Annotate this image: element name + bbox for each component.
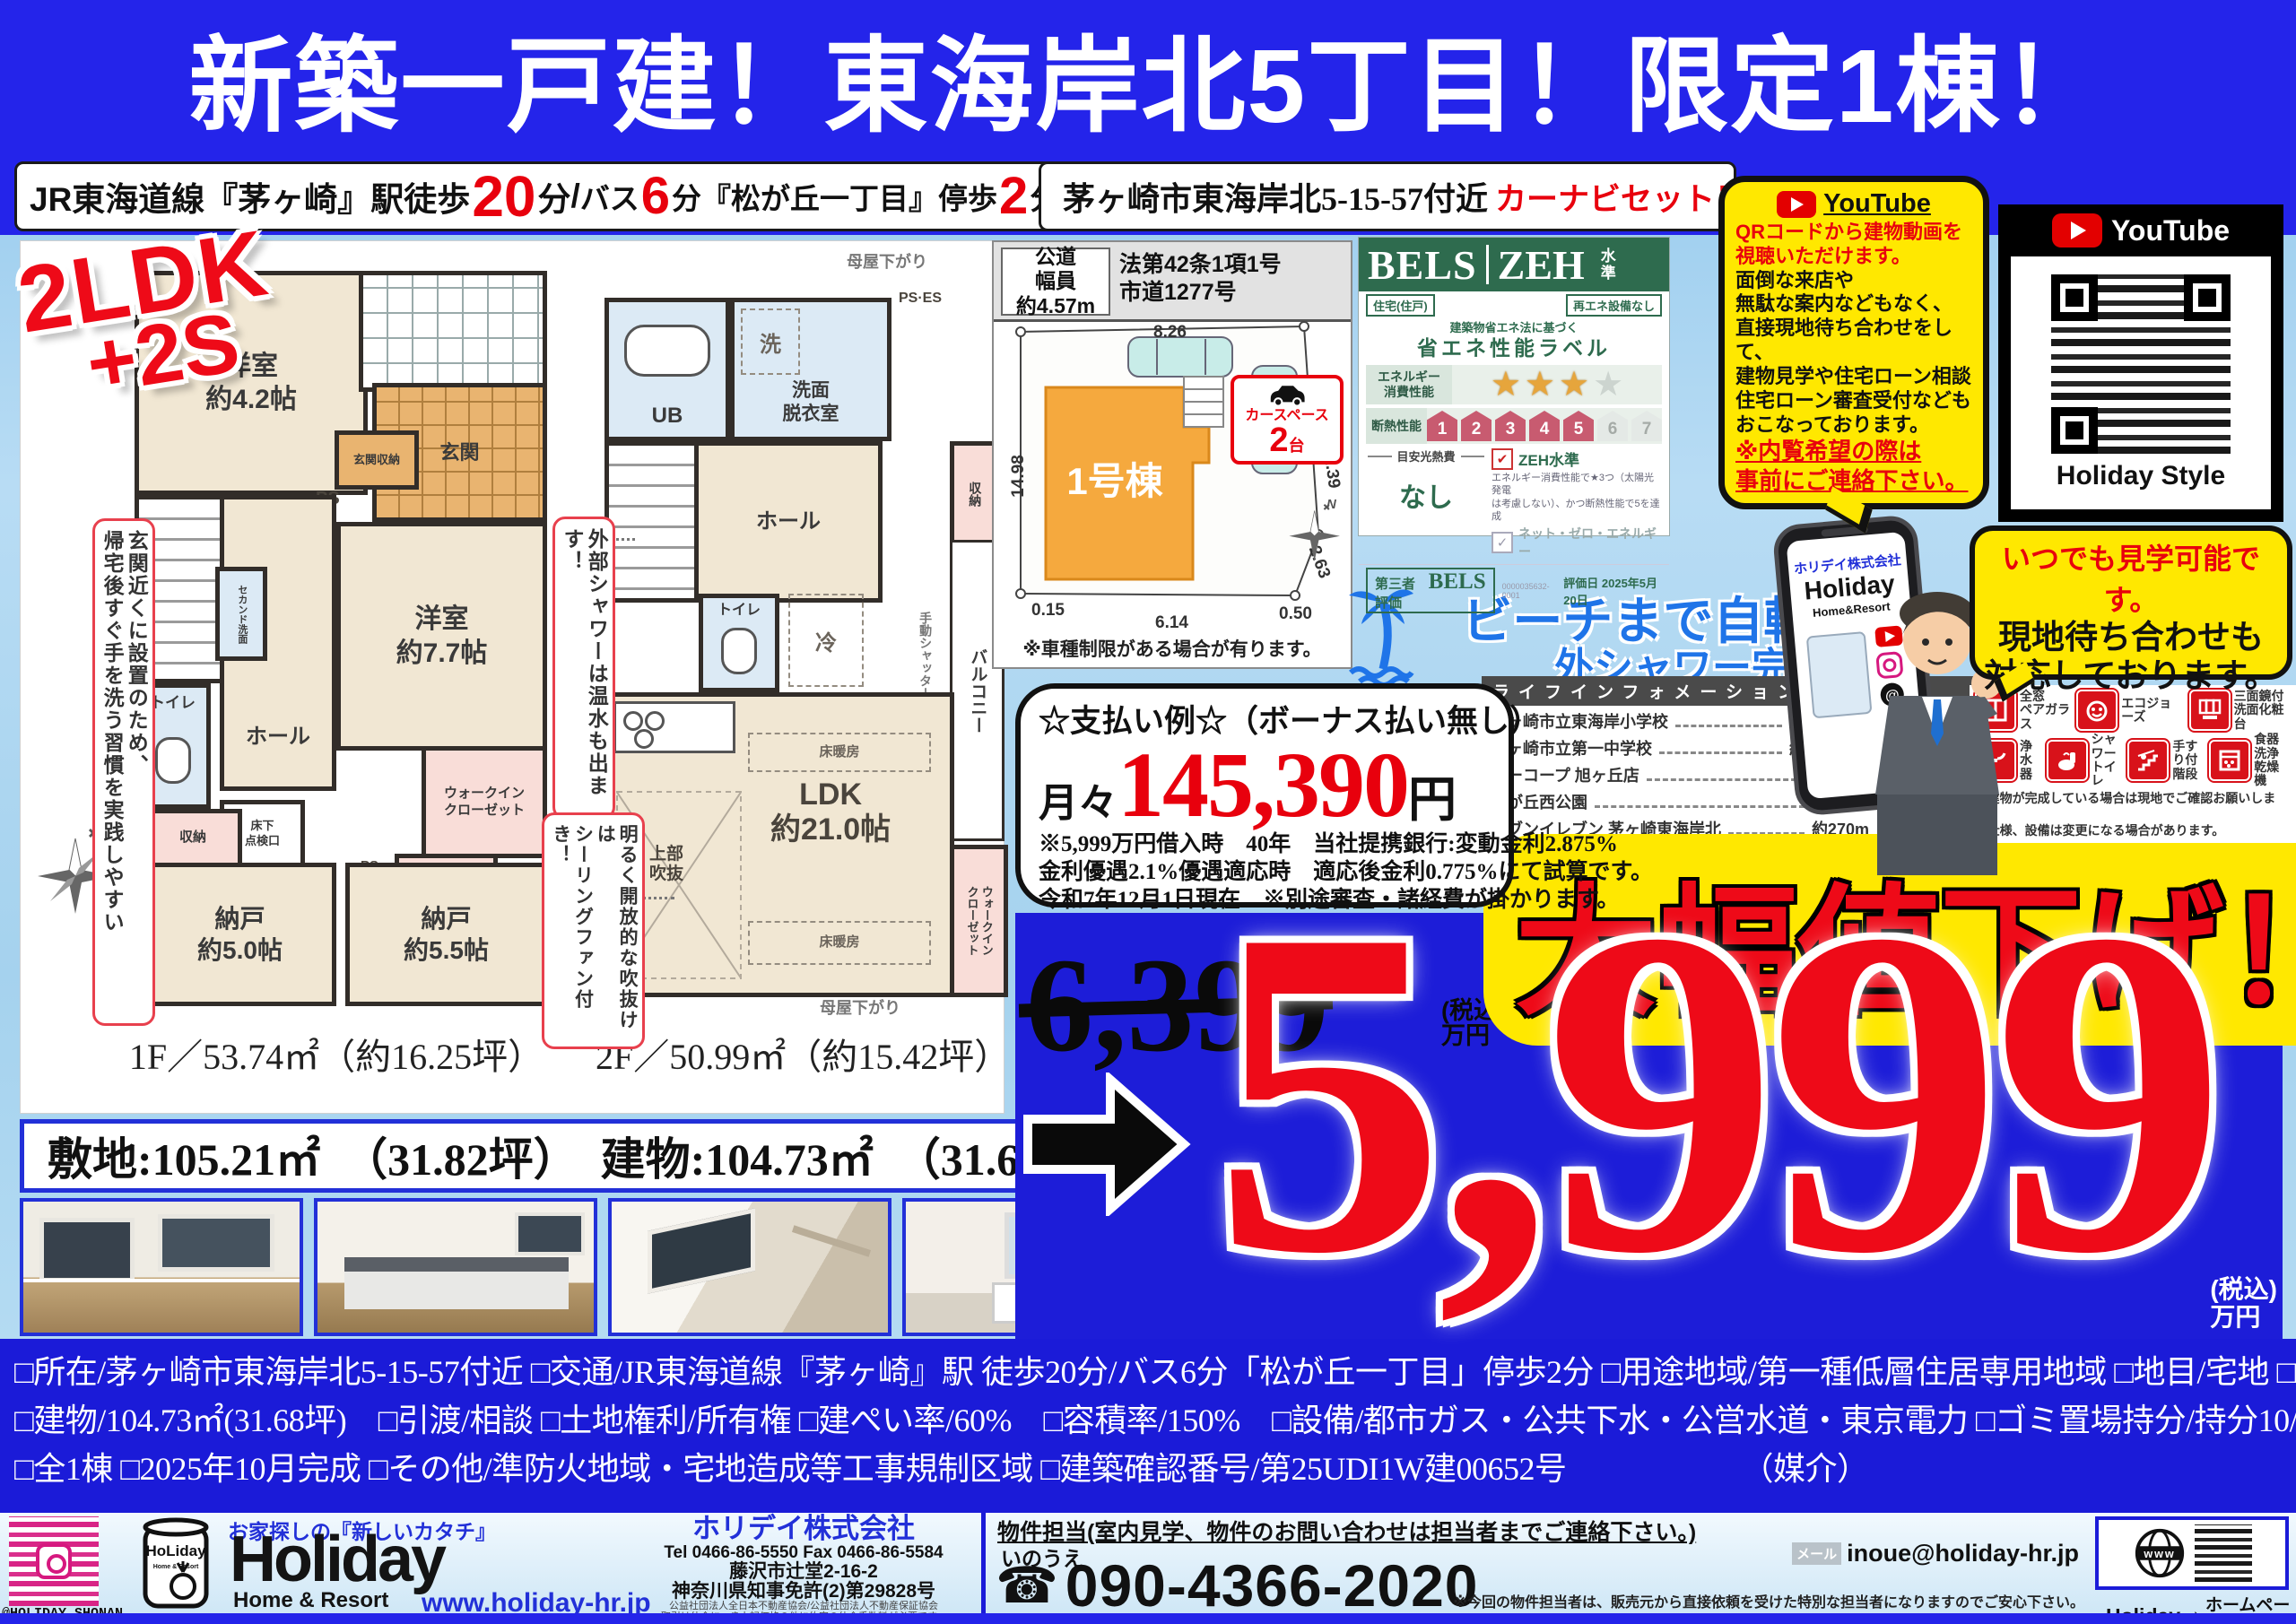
zeh-sub: 水準 bbox=[1596, 248, 1618, 282]
insulation-scale: 1 2 3 4 5 6 7 bbox=[1427, 408, 1662, 444]
youtube-brand: YouTube bbox=[2111, 214, 2230, 248]
carnavi-label: カーナビセット！ bbox=[1495, 174, 1736, 220]
bels-header: BELS ZEH 水準 bbox=[1359, 238, 1669, 291]
feature-item: シャワー トイレ bbox=[2047, 733, 2123, 788]
dim-bottom: 6.14 bbox=[1155, 613, 1188, 633]
room-ldk: 上部 吹抜 LDK 約21.0帖 床暖房 床暖房 bbox=[604, 692, 954, 997]
floor-heating-1: 床暖房 bbox=[748, 733, 931, 772]
company-info: ホリデイ株式会社 Tel 0466-86-5550 Fax 0466-86-55… bbox=[631, 1515, 976, 1623]
siteplan-note: ※車種制限がある場合が有ります。 bbox=[994, 635, 1351, 662]
building-number-label: 1号棟 bbox=[1066, 460, 1163, 502]
zeh-brand: ZEH bbox=[1498, 241, 1585, 289]
youtube-line: 直接現地待ち合わせをして、 bbox=[1735, 317, 1972, 365]
payment-example-box: ☆支払い例☆（ボーナス払い無し） 月々 145,390 円 ※5,999万円借入… bbox=[1015, 683, 1514, 908]
photo-window bbox=[158, 1214, 274, 1272]
room-genkan-storage: 玄関収納 bbox=[335, 430, 419, 490]
room-western-7_7: 洋室 約7.7帖 bbox=[336, 522, 547, 751]
insulation-grade: 4 bbox=[1529, 411, 1560, 441]
holiday-logo: Holiday bbox=[230, 1529, 444, 1590]
checkbox-gray-icon: ✓ bbox=[1492, 532, 1513, 553]
star-icon: ★ bbox=[1491, 368, 1521, 402]
bels-label-title: 省エネ性能ラベル bbox=[1359, 335, 1669, 361]
eco-jozu-icon bbox=[2076, 690, 2118, 731]
divider bbox=[981, 1513, 986, 1613]
dim-top: 8.26 bbox=[1153, 323, 1187, 343]
carspace-badge: カースペース 2台 bbox=[1231, 375, 1344, 465]
photo-living bbox=[20, 1198, 303, 1336]
room-storage: 収納 bbox=[143, 809, 242, 867]
youtube-qr-box: YouTube Holiday Style bbox=[1998, 204, 2283, 522]
label-shutter: 手動シャッター bbox=[918, 612, 933, 699]
room-storage-5_5: 納戸 約5.5帖 bbox=[345, 863, 547, 1006]
details-line-1: □所在/茅ヶ崎市東海岸北5-15-57付近 □交通/JR東海道線『茅ヶ崎』駅 徒… bbox=[14, 1348, 2282, 1396]
youtube-brand: YouTube bbox=[1823, 189, 1931, 219]
globe-www-icon: www bbox=[2132, 1525, 2187, 1581]
toilet-icon bbox=[721, 628, 757, 674]
company-license: 神奈川県知事免許(2)第29828号 bbox=[631, 1582, 976, 1602]
note-outdoor-shower: 外部シャワーは温水も出ます！ bbox=[552, 517, 615, 820]
visit-line-2: 現地待ち合わせも bbox=[1982, 619, 2280, 657]
youtube-line: 無駄な案内などもなく、 bbox=[1735, 292, 1972, 317]
handrail-stairs-icon bbox=[2127, 740, 2169, 781]
agent-phone-illustration: ホリデイ株式会社 Holiday Home&Resort @ bbox=[1771, 499, 2000, 920]
homepage-qr-code bbox=[2195, 1524, 2252, 1582]
bus-minutes: 6 bbox=[641, 170, 670, 222]
photo-window bbox=[39, 1218, 135, 1282]
photo-kitchen bbox=[314, 1198, 597, 1336]
car-icon bbox=[1266, 382, 1308, 407]
stairs-down bbox=[604, 441, 703, 603]
washer-space: 洗 bbox=[741, 308, 800, 375]
compass-icon: N bbox=[1288, 499, 1342, 565]
bus-stop-name: 分『松が丘一丁目』停歩 bbox=[672, 175, 997, 218]
contact-block: 物件担当(室内見学、物件のお問い合わせは担当者までご連絡下さい。) いのうえ メ… bbox=[996, 1513, 2088, 1613]
homepage-box: www bbox=[2095, 1516, 2289, 1590]
qr-caption: Holiday Style bbox=[2057, 461, 2225, 491]
fridge-space: 冷 bbox=[788, 594, 864, 687]
feature-label: 手すり付 階段 bbox=[2172, 740, 2204, 781]
energy-row-label: エネルギー 消費性能 bbox=[1366, 365, 1452, 404]
features-note-2: ※仕様、設備は変更になる場合があります。 bbox=[1975, 822, 2291, 838]
insulation-grade: 1 bbox=[1427, 411, 1457, 441]
carspace-unit: 台 bbox=[1289, 438, 1305, 454]
new-price-tax: (税込) 万円 bbox=[2210, 1276, 2277, 1332]
road-law-label: 法第42条1項1号 市道1277号 bbox=[1119, 251, 1282, 308]
youtube-play-icon bbox=[2052, 213, 2102, 248]
evaluation-date: 評価日 2025年5月20日 bbox=[1563, 574, 1662, 608]
room-second-washbasin: セカンド洗面 bbox=[215, 567, 267, 661]
cert-id: 0000035632-0001 bbox=[1502, 582, 1557, 600]
instagram-qr-code bbox=[9, 1516, 99, 1606]
bus-label: バス bbox=[580, 175, 639, 218]
toilet-icon bbox=[155, 737, 191, 784]
company-telfax: Tel 0466-86-5550 Fax 0466-86-5584 bbox=[631, 1544, 976, 1562]
photo-beam bbox=[792, 1225, 871, 1256]
payment-note-2: 金利優遇2.1%優遇適応時 適応後金利0.775%にて試算です。 bbox=[1039, 858, 1491, 886]
insulation-row: 断熱性能 1 2 3 4 5 6 7 bbox=[1366, 408, 1662, 444]
details-line-3: □全1棟 □2025年10月完成 □その他/準防火地域・宅地造成等工事規制区域 … bbox=[14, 1445, 2282, 1493]
bels-zeh-label: BELS ZEH 水準 住宅(住戸) 再エネ設備なし 建築物省エネ法に基づく 省… bbox=[1358, 237, 1670, 536]
bels-law-text: 建築物省エネ法に基づく bbox=[1359, 321, 1669, 335]
feature-label: 三面鏡付 洗面化粧台 bbox=[2234, 690, 2285, 731]
contact-note: ※今回の物件担当者は、販売元から直接依頼を受けた特別な担当者になりますのでご安心… bbox=[1453, 1590, 2084, 1611]
bels-tag-housing: 住宅(住戸) bbox=[1366, 294, 1435, 317]
room-wic-2f: ウォークイン クローゼット bbox=[950, 845, 1008, 997]
visit-bubble: いつでも見学可能です。 現地待ち合わせも 対応しております。 bbox=[1970, 525, 2292, 680]
shower-toilet-icon bbox=[2047, 740, 2088, 781]
walk-minutes: 20 bbox=[472, 168, 535, 225]
zeh-block: ✔ZEH水準 エネルギー消費性能で★3つ（太陽光発電 は考慮しない）、かつ断熱性… bbox=[1492, 447, 1660, 560]
stop-minutes: 2 bbox=[999, 170, 1028, 222]
company-address: 藤沢市辻堂2-16-2 bbox=[631, 1562, 976, 1582]
siteplan-drawing: 1号棟 bbox=[994, 319, 1351, 615]
feature-label: シャワー トイレ bbox=[2092, 733, 2123, 788]
label-void: 上部 吹抜 bbox=[649, 845, 683, 884]
contact-mail-row: メール inoue@holiday-hr.jp bbox=[1792, 1540, 2079, 1568]
energy-row: エネルギー 消費性能 ★ ★ ★ ★ bbox=[1366, 365, 1662, 404]
features-panel: 全窓 ペアガラス エコジョーズ 三面鏡付 洗面化粧台 浄水器 シャワー トイレ bbox=[1970, 685, 2296, 843]
photo-detail bbox=[23, 1279, 303, 1282]
checkbox-checked-icon: ✔ bbox=[1492, 448, 1513, 470]
visit-line-3: 対応しております。 bbox=[1982, 657, 2280, 696]
utility-cost-block: 目安光熱費 なし bbox=[1368, 447, 1484, 560]
flyer-page: 新築一戸建！東海岸北5丁目！限定1棟！ JR東海道線『茅ヶ崎』駅徒歩20分/バス… bbox=[0, 0, 2296, 1624]
instagram-icon bbox=[36, 1543, 72, 1579]
monthly-amount: 145,390 bbox=[1118, 742, 1408, 830]
bels-bottom: 目安光熱費 なし ✔ZEH水準 エネルギー消費性能で★3つ（太陽光発電 は考慮し… bbox=[1359, 444, 1669, 560]
contact-phone-row: ☎ 090-4366-2020 bbox=[996, 1556, 1479, 1615]
mirror-vanity-icon bbox=[2189, 690, 2231, 731]
carspace-count: 2 bbox=[1269, 423, 1288, 457]
insulation-grade-empty: 6 bbox=[1597, 411, 1628, 441]
photo-cabinet bbox=[344, 1272, 569, 1309]
insulation-grade: 5 bbox=[1563, 411, 1594, 441]
dim-left: 14.98 bbox=[1009, 455, 1029, 498]
holiday-can-logo: HoLiday Home & Resort bbox=[133, 1516, 219, 1611]
third-party-brand: BELS bbox=[1429, 569, 1486, 595]
bottom-strip bbox=[0, 1613, 2296, 1624]
energy-stars: ★ ★ ★ ★ bbox=[1452, 365, 1662, 404]
youtube-line: 住宅ローン審査受付なども bbox=[1735, 389, 1972, 413]
netzero-label: ネット・ゼロ・エネルギー bbox=[1518, 525, 1660, 560]
bels-title: 建築物省エネ法に基づく 省エネ性能ラベル bbox=[1359, 321, 1669, 361]
photo-loft bbox=[608, 1198, 891, 1336]
youtube-line-red: QRコードから建物動画を bbox=[1735, 221, 1972, 245]
feature-item: 手すり付 階段 bbox=[2127, 740, 2204, 781]
walk-unit: 分 bbox=[538, 172, 571, 221]
label-ps-es: PS·ES bbox=[899, 291, 942, 307]
poi-name: 茅ヶ崎市立第一中学校 bbox=[1491, 736, 1652, 760]
room-wic-1f: ウォークイン クローゼット bbox=[422, 746, 547, 858]
third-party-label: 第三者評価 bbox=[1375, 574, 1420, 612]
room-storage-5_0: 納戸 約5.0帖 bbox=[143, 863, 336, 1006]
utility-cost-value: なし bbox=[1368, 475, 1484, 515]
payment-note-3: 令和7年12月1日現在 ※別途審査・諸経費が掛かります。 bbox=[1039, 886, 1491, 914]
features-note-1: ※建物が完成している場合は現地でご確認お願いします。 bbox=[1975, 790, 2291, 822]
star-icon: ★ bbox=[1559, 368, 1589, 402]
entrance-porch bbox=[359, 271, 547, 392]
holiday-logo-sub: Home & Resort bbox=[233, 1588, 388, 1613]
slash: / bbox=[571, 178, 580, 215]
can-logo-sub: Home & Resort bbox=[153, 1564, 199, 1570]
contact-email: inoue@holiday-hr.jp bbox=[1847, 1540, 2079, 1568]
feature-item: エコジョーズ bbox=[2076, 690, 2183, 731]
details-line-2: □建物/104.73㎡(31.68坪) □引渡/相談 □土地権利/所有権 □建ぺ… bbox=[14, 1396, 2282, 1445]
monthly-label: 月々 bbox=[1039, 785, 1118, 822]
bels-tags: 住宅(住戸) 再エネ設備なし bbox=[1359, 291, 1669, 319]
feature-item: 三面鏡付 洗面化粧台 bbox=[2189, 690, 2285, 731]
feature-item: 食器洗浄 乾燥機 bbox=[2209, 733, 2285, 788]
label-ldk: LDK 約21.0帖 bbox=[770, 777, 891, 847]
visit-line-1: いつでも見学可能です。 bbox=[1982, 536, 2280, 619]
footer: @HOLIDAY_SHONAN_ HoLiday Home & Resort お… bbox=[0, 1509, 2296, 1613]
dim-bottom-left: 0.15 bbox=[1031, 601, 1065, 621]
utility-cost-label: 目安光熱費 bbox=[1397, 447, 1456, 465]
insulation-grade-empty: 7 bbox=[1631, 411, 1662, 441]
photo-skylight bbox=[648, 1208, 755, 1294]
room-hall-2f: ホール bbox=[694, 441, 883, 603]
train-access-pill: JR東海道線『茅ヶ崎』駅徒歩20分/バス6分『松が丘一丁目』停歩2分 bbox=[14, 161, 1055, 231]
payment-note-1: ※5,999万円借入時 40年 当社提携銀行:変動金利2.875% bbox=[1039, 830, 1491, 858]
dotted-leader bbox=[1675, 725, 1782, 727]
photo-window bbox=[515, 1212, 585, 1255]
address-pill: 茅ヶ崎市東海岸北5-15-57付近 カーナビセット！ bbox=[1039, 161, 1736, 231]
star-icon-empty: ★ bbox=[1593, 368, 1623, 402]
feature-label: 全窓 ペアガラス bbox=[2020, 690, 2071, 731]
youtube-info-bubble: YouTube QRコードから建物動画を 視聴いただけます。 面倒な来店や 無駄… bbox=[1718, 176, 1989, 509]
dotted-leader bbox=[1659, 751, 1782, 754]
zeh-note: エネルギー消費性能で★3つ（太陽光発電 は考慮しない）、かつ断熱性能で5を達成 bbox=[1492, 472, 1660, 523]
insulation-row-label: 断熱性能 bbox=[1366, 408, 1427, 444]
bels-brand: BELS bbox=[1368, 241, 1477, 289]
contact-header: 物件担当(室内見学、物件のお問い合わせは担当者までご連絡下さい。) bbox=[997, 1515, 1696, 1547]
price-panel: 6,399 (税込) 万円 大幅値下げ！ 5,999 (税込) 万円 bbox=[1015, 913, 2283, 1339]
insulation-grade: 3 bbox=[1495, 411, 1526, 441]
siteplan-box: 公道 幅員 約4.57m 法第42条1項1号 市道1277号 1号棟 8.26 … bbox=[992, 240, 1352, 669]
floorplan-1f-caption: 1F／53.74㎡（約16.25坪） bbox=[126, 1028, 547, 1080]
note-entrance-washbasin: 玄関近くに設置のため、 帰宅後すぐ手を洗う習慣を実践しやすい bbox=[92, 518, 155, 1026]
can-logo-text: HoLiday bbox=[145, 1542, 206, 1559]
photo-counter bbox=[344, 1257, 569, 1272]
note-ceiling-fan: 明るく開放的な吹抜けは シーリングファン付き！ bbox=[542, 812, 645, 1049]
youtube-line: 建物見学や住宅ローン相談 bbox=[1735, 365, 1972, 389]
youtube-line-warning: ※内覧希望の際は bbox=[1735, 437, 1972, 466]
youtube-play-icon bbox=[1777, 191, 1816, 218]
road-width-label: 公道 幅員 約4.57m bbox=[1001, 248, 1110, 316]
youtube-line: おこなっております。 bbox=[1735, 413, 1972, 438]
youtube-line-red: 視聴いただけます。 bbox=[1735, 245, 1972, 269]
feature-label: 食器洗浄 乾燥機 bbox=[2254, 733, 2285, 788]
dim-bottom-right: 0.50 bbox=[1279, 604, 1312, 624]
kitchen-counter bbox=[613, 701, 735, 753]
qr-finder bbox=[2051, 407, 2098, 454]
layout-badge: 2LDK +2S bbox=[13, 225, 284, 408]
feature-label: 浄水器 bbox=[2020, 740, 2041, 781]
qr-finder bbox=[2051, 274, 2098, 321]
www-label: www bbox=[2143, 1548, 2175, 1560]
divider bbox=[1486, 245, 1489, 284]
property-details-band: □所在/茅ヶ崎市東海岸北5-15-57付近 □交通/JR東海道線『茅ヶ崎』駅 徒… bbox=[0, 1339, 2296, 1509]
bathtub-icon bbox=[624, 325, 710, 377]
insulation-grade: 2 bbox=[1461, 411, 1492, 441]
label-moya-top: 母屋下がり bbox=[847, 253, 927, 272]
yen-label: 円 bbox=[1408, 777, 1457, 823]
headline-title: 新築一戸建！東海岸北5丁目！限定1棟！ bbox=[188, 2, 2107, 152]
floorplan-2f-caption: 2F／50.99㎡（約15.42坪） bbox=[596, 1028, 999, 1080]
label-moya-bottom: 母屋下がり bbox=[820, 999, 900, 1018]
area-band-text: 敷地:105.21㎡ （31.82坪） 建物:104.73㎡ （31.68坪） bbox=[48, 1124, 1131, 1188]
floor-heating-2: 床暖房 bbox=[748, 921, 931, 965]
bels-tag-renewable: 再エネ設備なし bbox=[1566, 294, 1662, 317]
headline-banner: 新築一戸建！東海岸北5丁目！限定1棟！ bbox=[0, 0, 2296, 154]
star-icon: ★ bbox=[1525, 368, 1555, 402]
youtube-line-warning: 事前にご連絡下さい。 bbox=[1735, 466, 1972, 496]
floorplan-2f: 母屋下がり UB 洗面 脱衣室 洗 PS·ES 収納 DN ホール トイレ 冷 … bbox=[596, 271, 999, 997]
qr-finder bbox=[2184, 274, 2231, 321]
dishwasher-icon bbox=[2209, 740, 2250, 781]
zeh-level-label: ZEH水準 bbox=[1518, 447, 1579, 470]
company-name: ホリデイ株式会社 bbox=[631, 1515, 976, 1544]
bels-footer: 第三者評価BELS 0000035632-0001 評価日 2025年5月20日 bbox=[1359, 564, 1669, 616]
payment-amount-row: 月々 145,390 円 bbox=[1039, 742, 1491, 830]
contact-phone-number: 090-4366-2020 bbox=[1065, 1556, 1479, 1615]
mail-label: メール bbox=[1792, 1542, 1841, 1565]
new-price-value: 5,999 bbox=[1150, 859, 2280, 1325]
phone-icon: ☎ bbox=[996, 1560, 1058, 1611]
feature-label: エコジョーズ bbox=[2121, 697, 2183, 725]
property-address: 茅ヶ崎市東海岸北5-15-57付近 bbox=[1063, 173, 1488, 220]
youtube-line: 面倒な来店や bbox=[1735, 269, 1972, 293]
qr-code bbox=[2051, 274, 2231, 454]
